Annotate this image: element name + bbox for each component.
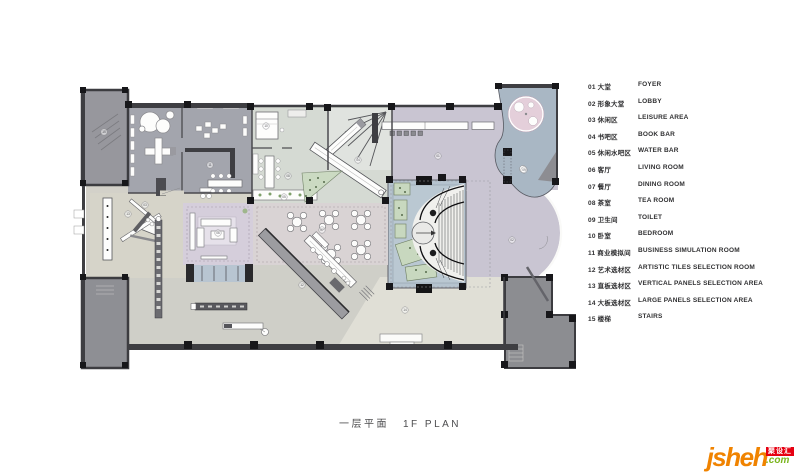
legend-item-zh: 09 卫生间 [588,214,618,224]
legend-item-en: BUSINESS SIMULATION ROOM [638,247,740,254]
plan-title-zh: 一层平面 [339,419,389,430]
svg-text:05: 05 [282,195,286,199]
svg-text:13: 13 [126,212,130,216]
legend-item-en: BOOK BAR [638,131,675,138]
legend-item-zh: 05 休闲水吧区 [588,147,631,157]
legend-item-en: WATER BAR [638,147,679,154]
svg-text:06: 06 [216,231,220,235]
legend-item-en: STAIRS [638,313,663,320]
legend-item-en: LEISURE AREA [638,114,689,121]
legend-item: 02 形象大堂LOBBY [588,95,763,112]
legend-item: 15 楼梯STAIRS [588,310,763,327]
legend-item-zh: 03 休闲区 [588,114,618,124]
legend-item-en: TOILET [638,214,662,221]
legend-item-en: VERTICAL PANELS SELECTION AREA [638,280,763,287]
legend-item: 06 客厅LIVING ROOM [588,161,763,178]
legend-item-zh: 13 直板选材区 [588,280,631,290]
legend-item-zh: 11 商业模拟间 [588,247,631,257]
legend-item-en: LIVING ROOM [638,164,684,171]
stair-block-bottom-right [501,267,576,368]
stair-room-top-left [82,90,128,185]
water-bar-strip [186,264,253,282]
legend-item-zh: 06 客厅 [588,164,611,174]
svg-text:15: 15 [102,130,106,134]
legend-item: 05 休闲水吧区WATER BAR [588,144,763,161]
logo-wordmark: jsheh [707,444,767,470]
legend-item: 14 大板选材区LARGE PANELS SELECTION AREA [588,294,763,311]
legend-item-en: LOBBY [638,98,662,105]
legend-item: 08 茶室TEA ROOM [588,194,763,211]
legend-item-en: DINING ROOM [638,181,685,188]
legend-item-en: BEDROOM [638,230,673,237]
floor-plan: 010203040506070809101112131415 [60,70,580,370]
svg-text:01: 01 [436,154,440,158]
legend-item-zh: 08 茶室 [588,197,611,207]
legend-item-zh: 12 艺术选材区 [588,264,631,274]
svg-text:03: 03 [143,203,147,207]
lobby-blue-zone [495,86,557,197]
legend-item-en: TEA ROOM [638,197,674,204]
legend-item: 10 卧室BEDROOM [588,227,763,244]
legend-item-en: LARGE PANELS SELECTION AREA [638,297,753,304]
svg-text:10: 10 [264,124,268,128]
svg-text:09: 09 [522,168,526,172]
legend-item-zh: 04 书吧区 [588,131,618,141]
legend-item-zh: 14 大板选材区 [588,297,631,307]
legend-item-zh: 15 楼梯 [588,313,611,323]
logo-tld: .com [766,456,794,466]
legend-item: 13 直板选材区VERTICAL PANELS SELECTION AREA [588,277,763,294]
plan-title-en: 1F PLAN [403,419,461,430]
plan-title: 一层平面1F PLAN [280,415,520,430]
svg-text:08: 08 [286,174,290,178]
legend-item: 12 艺术选材区ARTISTIC TILES SELECTION ROOM [588,261,763,278]
legend-item-zh: 10 卧室 [588,230,611,240]
svg-text:07: 07 [320,228,324,232]
stair-room-bottom-left [82,278,128,368]
svg-text:11: 11 [208,163,212,167]
legend-item: 09 卫生间TOILET [588,211,763,228]
svg-text:02: 02 [510,238,514,242]
page-canvas: 010203040506070809101112131415 01 大堂FOYE… [0,0,800,473]
svg-text:12: 12 [300,283,304,287]
svg-text:04: 04 [356,158,360,162]
legend-item-zh: 02 形象大堂 [588,98,624,108]
legend-item-zh: 01 大堂 [588,81,611,91]
legend-item: 04 书吧区BOOK BAR [588,128,763,145]
legend-item-zh: 07 餐厅 [588,181,611,191]
legend-item: 07 餐厅DINING ROOM [588,178,763,195]
legend-item-en: FOYER [638,81,661,88]
site-logo: jsheh 聚设汇 .com [707,444,794,470]
legend-item: 11 商业模拟间BUSINESS SIMULATION ROOM [588,244,763,261]
legend-item: 03 休闲区LEISURE AREA [588,111,763,128]
legend-item: 01 大堂FOYER [588,78,763,95]
svg-text:14: 14 [403,308,407,312]
legend: 01 大堂FOYER02 形象大堂LOBBY03 休闲区LEISURE AREA… [588,78,763,327]
legend-item-en: ARTISTIC TILES SELECTION ROOM [638,264,755,271]
